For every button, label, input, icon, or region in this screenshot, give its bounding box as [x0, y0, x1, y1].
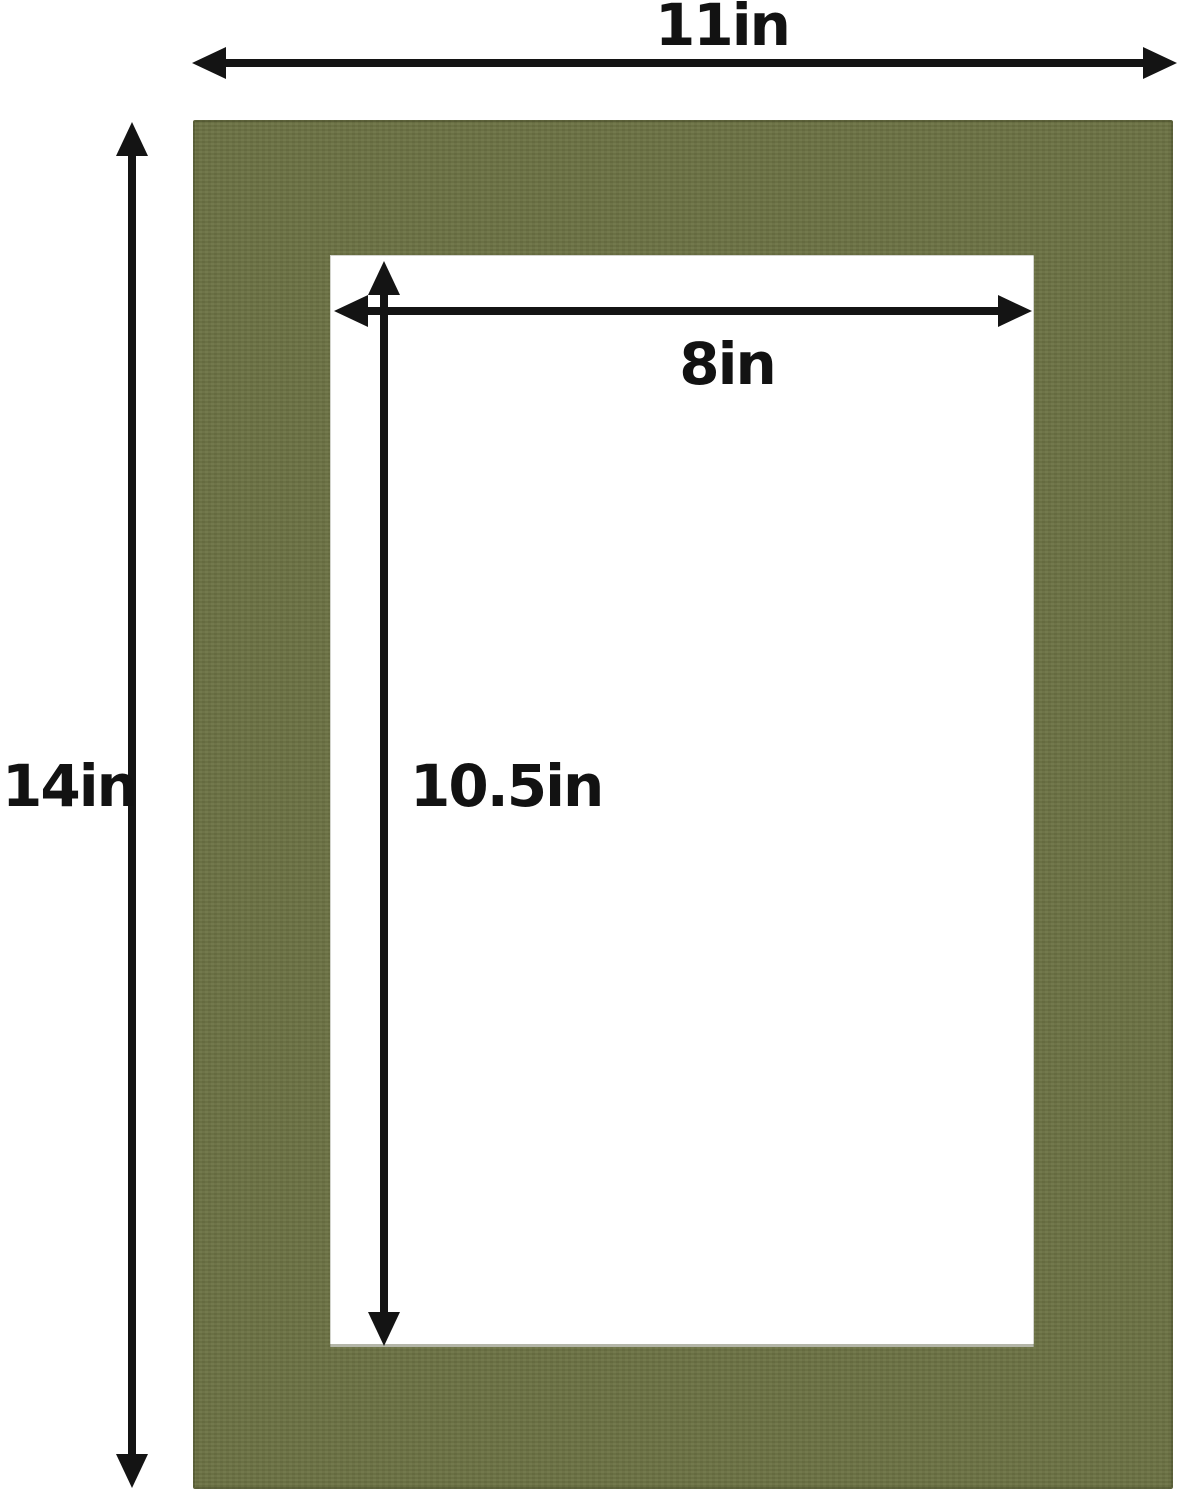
arrow-down-icon	[116, 1454, 148, 1488]
dimension-line	[218, 59, 1151, 67]
outer-height-label: 14in	[2, 757, 136, 815]
outer-width-label: 11in	[572, 0, 872, 54]
arrow-right-icon	[998, 295, 1032, 327]
dimension-line	[380, 287, 388, 1320]
opening-width-dimension-arrow	[334, 295, 1032, 327]
opening-height-label: 10.5in	[410, 757, 602, 815]
mat-dimension-diagram: 11in 14in 8in 10.5in	[0, 0, 1184, 1500]
dimension-line	[360, 307, 1006, 315]
arrow-right-icon	[1143, 47, 1177, 79]
arrow-down-icon	[368, 1312, 400, 1346]
opening-height-dimension-arrow	[368, 261, 400, 1346]
opening-width-label: 8in	[577, 335, 877, 393]
